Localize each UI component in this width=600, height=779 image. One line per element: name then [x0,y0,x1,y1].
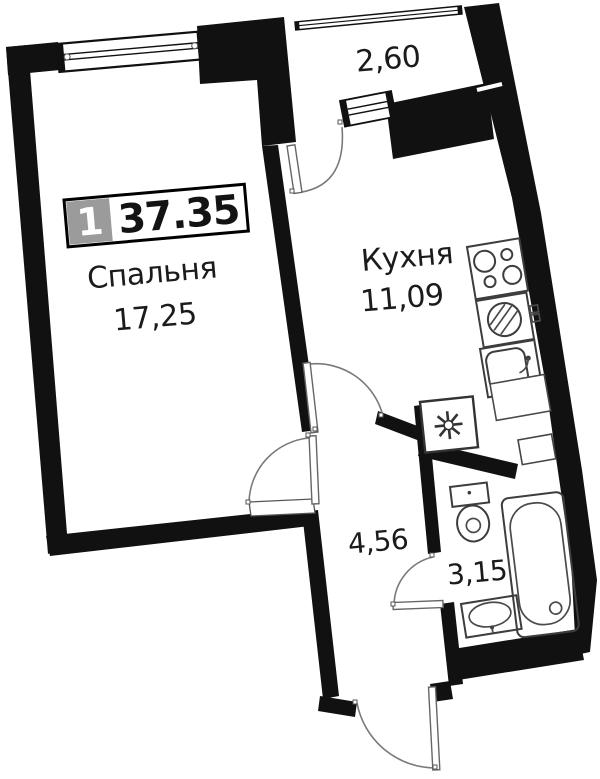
bedroom-area-label: 17,25 [112,296,198,338]
balcony-glazing-icon [295,6,462,30]
bedroom-window-icon [57,31,205,72]
entrance-door-icon [353,687,440,770]
kitchen-name-label: Кухня [360,236,455,279]
bathroom-door-icon [391,553,443,610]
kitchen-balcony-window-icon [340,91,396,126]
stove-icon [467,238,528,299]
walls [6,3,597,717]
wall-hall-bottom-stub [318,696,357,717]
kitchen-door-icon [303,362,383,432]
vent-duct-icon [518,434,556,465]
unit-badge: 1 37.35 [64,184,248,248]
bathroom-sink-icon [461,595,522,637]
wall-left [6,45,68,554]
balcony-door-icon [287,120,342,193]
balcony-area-label: 2,60 [354,39,422,80]
bedroom-name-label: Спальня [86,250,219,296]
floor-plan: 2,60 Спальня 17,25 Кухня 11,09 4,56 3,15… [0,0,600,779]
bathroom-area-label: 3,15 [446,553,509,591]
wall-hall-left [302,510,339,699]
toilet-icon [450,482,494,543]
unit-badge-room-count: 1 [75,199,104,245]
wall-balcony-kitchen-chunk [386,83,494,159]
hallway-area-label: 4,56 [347,522,410,560]
kitchen-area-label: 11,09 [359,277,445,319]
wall-window-pier [197,17,296,146]
kitchen-counter-icon [490,374,551,420]
bedroom-door-icon [246,433,319,516]
appliance-niche-fan-icon [420,396,478,452]
